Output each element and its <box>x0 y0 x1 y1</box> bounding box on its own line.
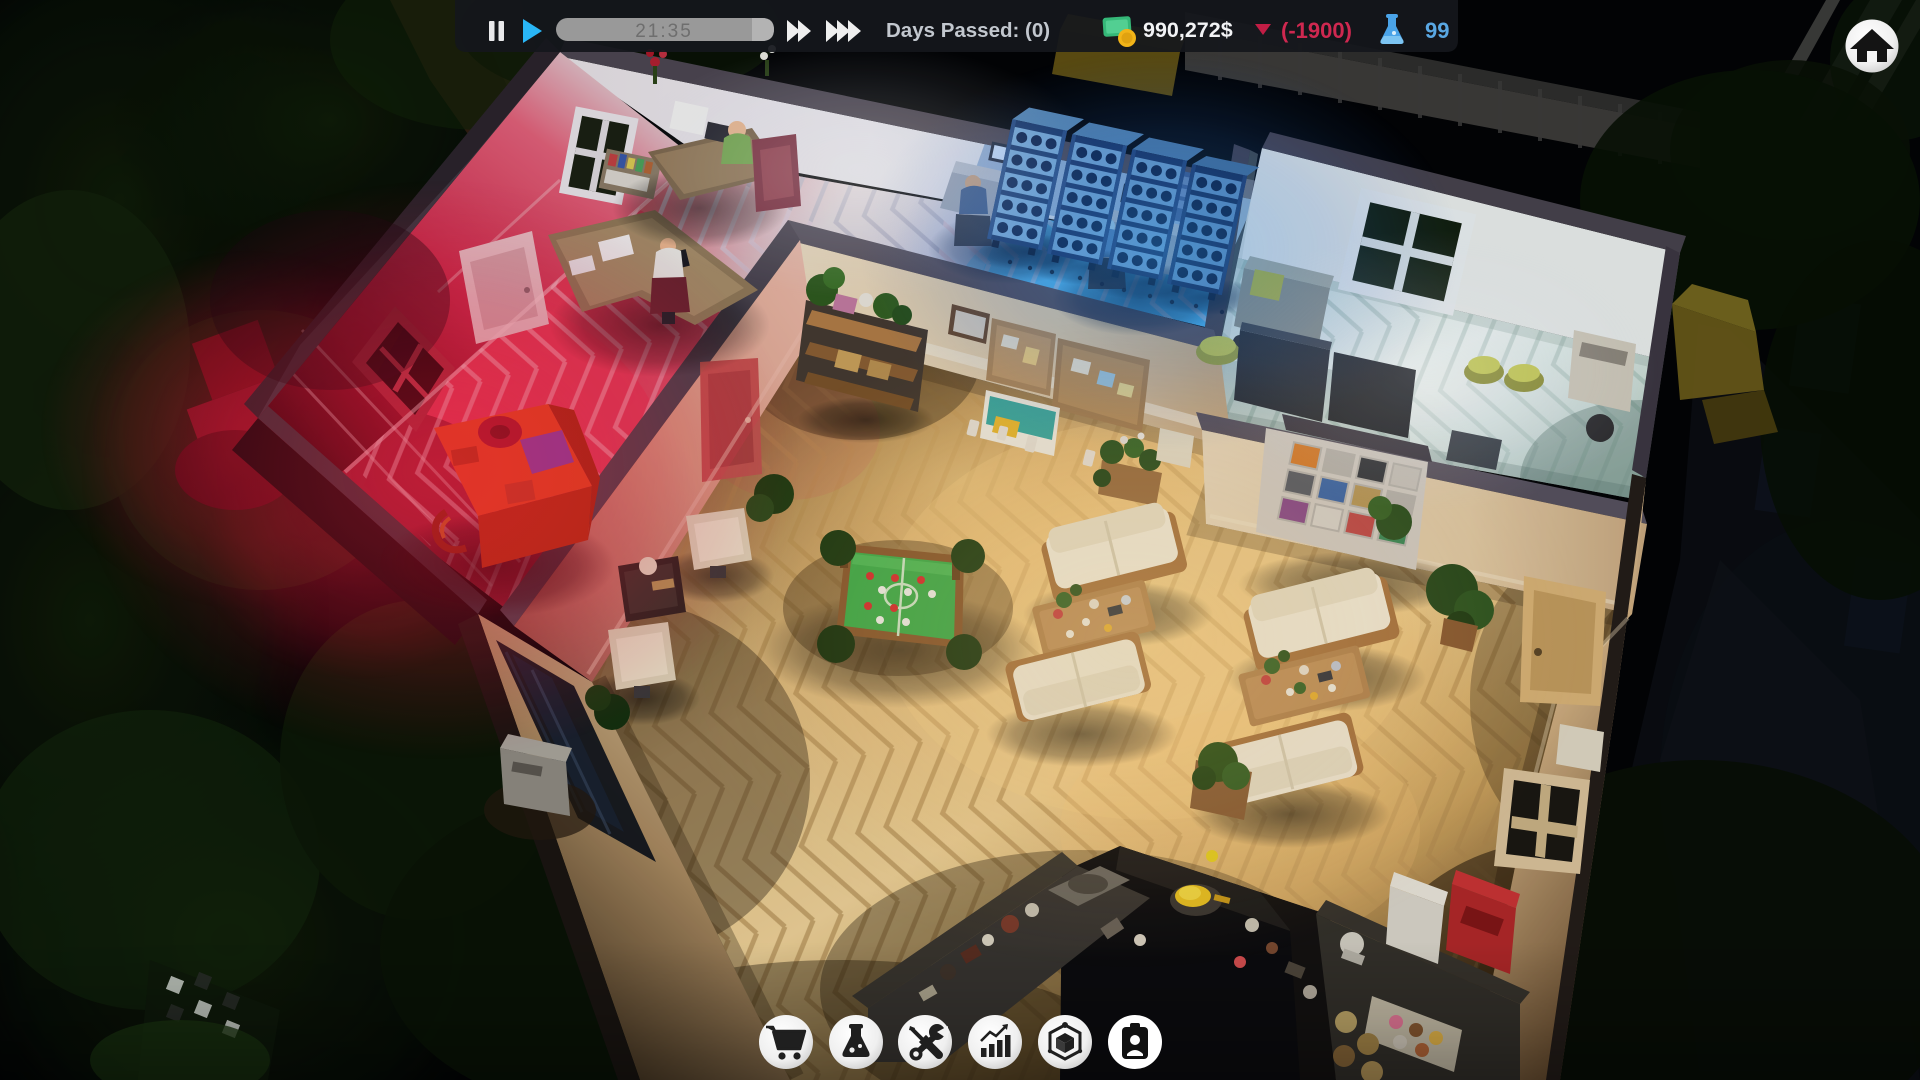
svg-text:Days Passed: (0): Days Passed: (0) <box>886 19 1050 42</box>
svg-text:99: 99 <box>1425 18 1449 43</box>
svg-text:(-1900): (-1900) <box>1281 18 1352 43</box>
svg-text:21:35: 21:35 <box>635 21 693 42</box>
svg-text:990,272$: 990,272$ <box>1143 18 1233 42</box>
